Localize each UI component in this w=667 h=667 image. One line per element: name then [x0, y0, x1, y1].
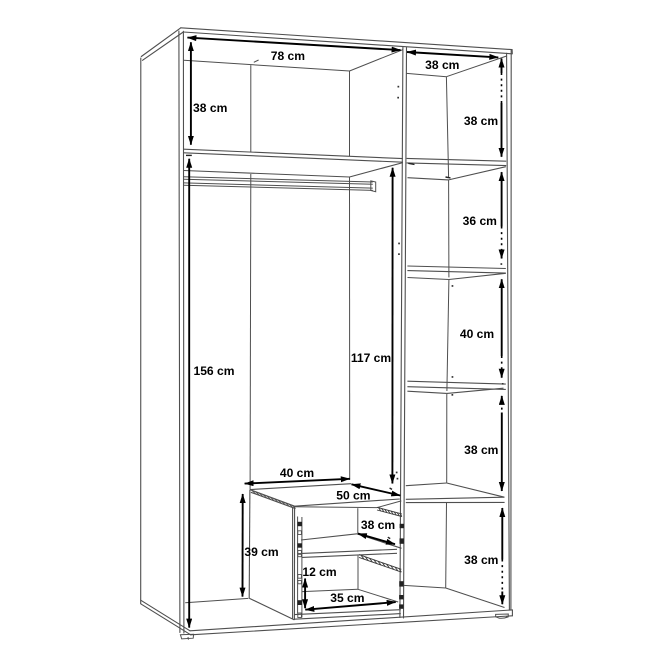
- svg-text:117 cm: 117 cm: [351, 351, 391, 365]
- svg-text:50 cm: 50 cm: [336, 488, 370, 502]
- svg-text:36 cm: 36 cm: [463, 214, 497, 228]
- svg-text:38 cm: 38 cm: [425, 58, 459, 72]
- svg-text:40 cm: 40 cm: [280, 466, 314, 480]
- svg-text:38 cm: 38 cm: [464, 553, 498, 567]
- svg-text:78 cm: 78 cm: [271, 49, 305, 63]
- svg-text:40 cm: 40 cm: [460, 327, 494, 341]
- svg-text:39 cm: 39 cm: [244, 545, 278, 559]
- svg-text:12 cm: 12 cm: [302, 565, 336, 579]
- svg-text:38 cm: 38 cm: [464, 443, 498, 457]
- svg-text:38 cm: 38 cm: [464, 114, 498, 128]
- svg-text:35 cm: 35 cm: [330, 591, 364, 605]
- svg-text:38 cm: 38 cm: [193, 101, 227, 115]
- svg-text:38 cm: 38 cm: [361, 518, 395, 532]
- svg-text:156 cm: 156 cm: [193, 364, 234, 378]
